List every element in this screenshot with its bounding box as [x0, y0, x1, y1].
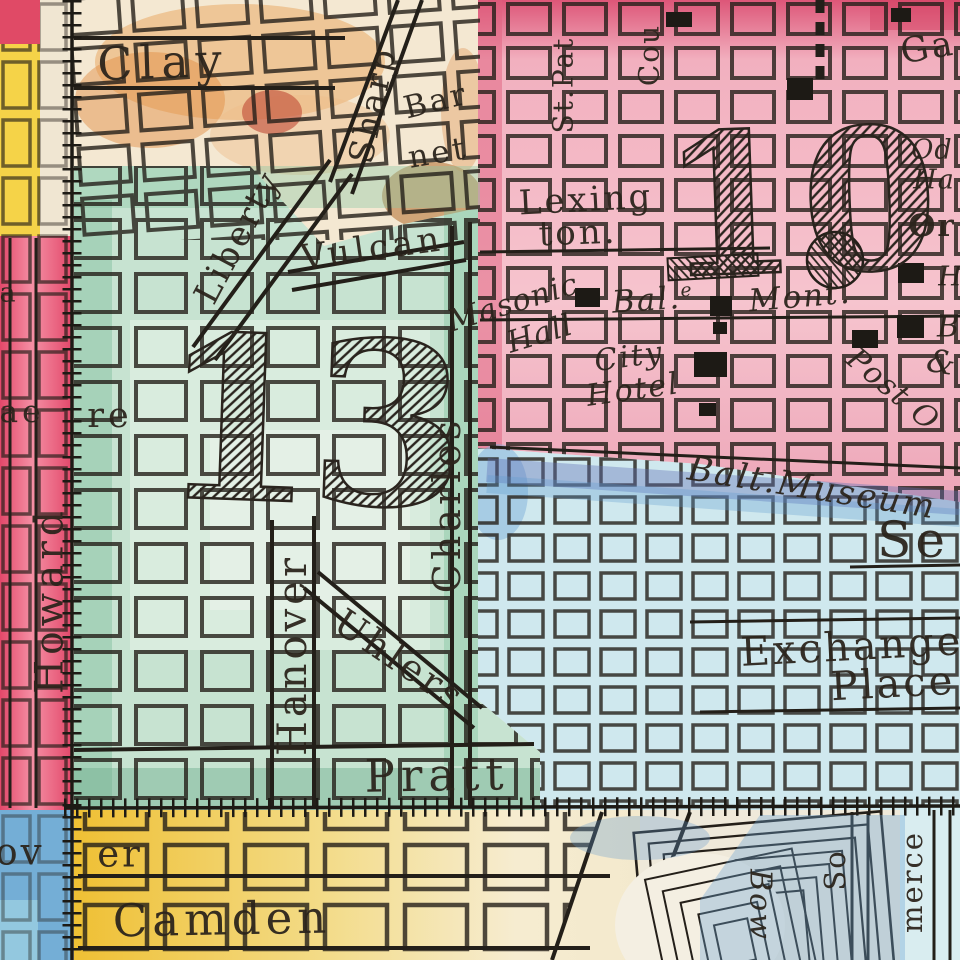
baltimore-abbrev-superscript: e [680, 280, 692, 302]
street-label-court: Cou [633, 24, 666, 86]
poi-label-h-fragment: H [938, 262, 960, 293]
poi-label-odd-fellows-line1: Od [911, 135, 952, 166]
ward-number-13: 13 [155, 286, 465, 560]
poi-label-odd-fellows-line2: Ha [913, 165, 955, 196]
street-label-fragment-ae: ae [0, 394, 44, 430]
street-label-exchange-line2: Place [830, 658, 957, 710]
poi-label-odd-fellows-line3: Or [908, 208, 955, 244]
street-label-commerce: merce [895, 831, 929, 933]
street-label-baltimore-abbrev: Bal.e [611, 279, 693, 320]
street-label-fragment-a: a [0, 278, 17, 309]
street-label-pratt: Pratt [364, 747, 510, 803]
street-label-howard: Howard [28, 506, 73, 694]
street-label-hanover: Hanover [270, 554, 316, 756]
poi-label-b-fragment: B [937, 310, 959, 345]
map-canvas: 13 10 Clay Sharp Bar net Liberty Vulcan … [0, 0, 960, 960]
street-label-second: Se [877, 511, 949, 569]
street-label-charles: Charles [425, 417, 469, 594]
street-label-fragment-re: re [87, 396, 132, 436]
poi-label-bowly-wharf: Bow [743, 869, 778, 941]
street-label-fragment-er: er [97, 833, 143, 876]
street-label-fragment-ov: ov [0, 831, 45, 874]
street-label-camden: Camden [112, 891, 331, 948]
street-label-south: So [818, 849, 852, 890]
street-label-clay: Clay [96, 33, 229, 92]
street-label-st-pat: St.Pat [547, 37, 580, 134]
street-label-lexington-line2: ton. [538, 212, 618, 255]
